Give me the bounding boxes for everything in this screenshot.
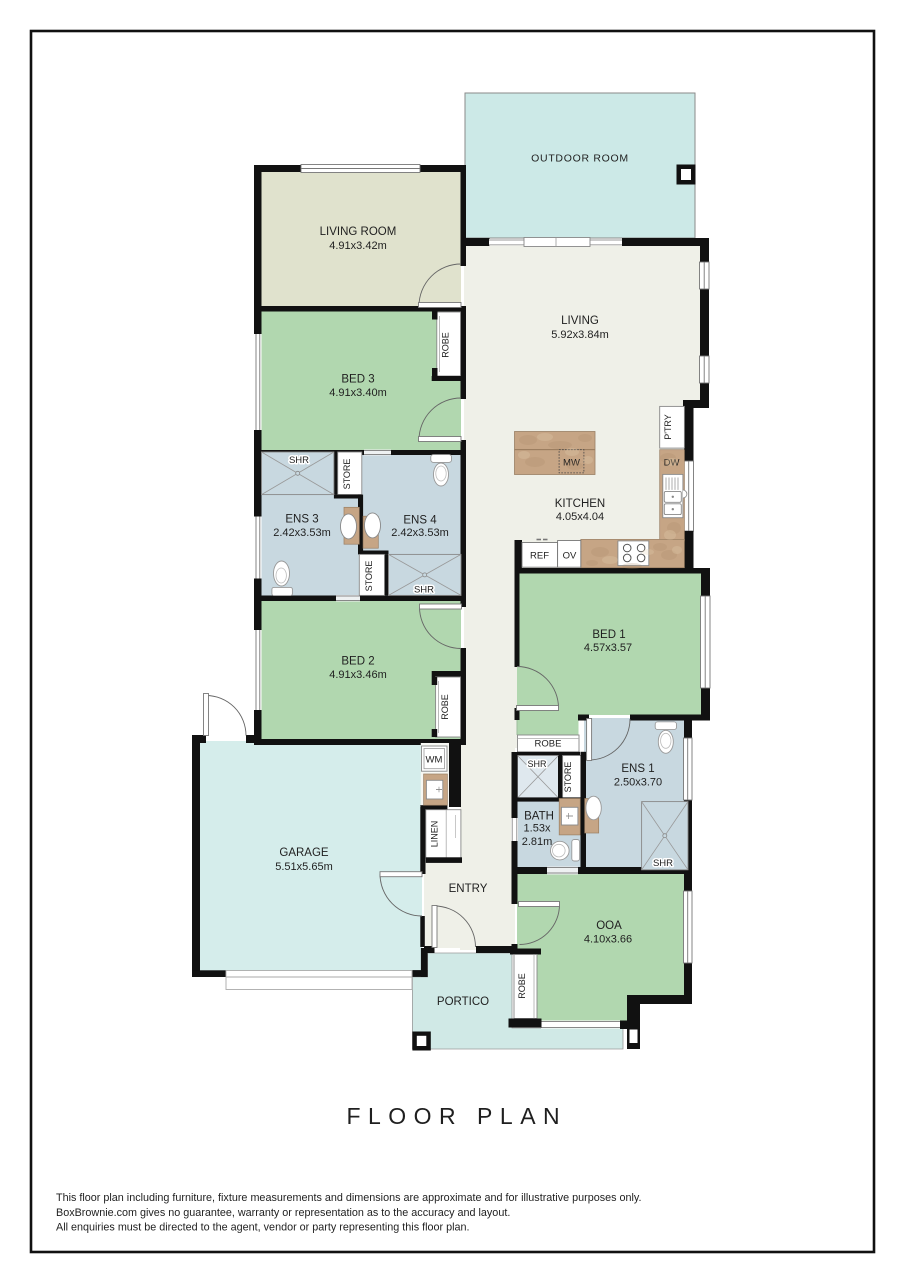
svg-text:OV: OV [563,551,577,562]
svg-text:4.91x3.42m: 4.91x3.42m [329,240,386,252]
svg-text:REF: REF [530,551,549,562]
svg-text:LIVING ROOM: LIVING ROOM [320,226,397,238]
svg-text:This floor plan including furn: This floor plan including furniture, fix… [56,1192,642,1204]
svg-text:All enquiries must be directed: All enquiries must be directed to the ag… [56,1222,470,1234]
svg-text:1.53x: 1.53x [524,823,551,835]
svg-text:STORE: STORE [563,762,573,793]
svg-text:5.92x3.84m: 5.92x3.84m [551,329,608,341]
svg-text:ROBE: ROBE [441,332,451,358]
svg-text:4.10x3.66: 4.10x3.66 [584,934,632,946]
svg-text:ENS 4: ENS 4 [403,515,437,527]
svg-text:BED 2: BED 2 [341,656,374,668]
svg-text:LIVING: LIVING [561,315,599,327]
svg-text:ENS 1: ENS 1 [621,763,654,775]
svg-text:KITCHEN: KITCHEN [555,498,605,510]
svg-text:WM: WM [426,755,443,766]
svg-text:2.42x3.53m: 2.42x3.53m [273,527,330,539]
svg-text:BATH: BATH [524,811,554,823]
svg-text:ENTRY: ENTRY [449,883,488,895]
svg-text:4.91x3.40m: 4.91x3.40m [329,387,386,399]
svg-text:OOA: OOA [596,920,622,932]
svg-text:ROBE: ROBE [535,739,562,750]
svg-text:ROBE: ROBE [440,694,450,720]
svg-text:SHR: SHR [289,455,309,466]
svg-text:BED 3: BED 3 [341,374,374,386]
svg-text:STORE: STORE [342,459,352,490]
svg-text:5.51x5.65m: 5.51x5.65m [275,861,332,873]
svg-text:SHR: SHR [414,585,434,596]
svg-text:SHR: SHR [527,759,547,769]
svg-text:P'TRY: P'TRY [663,414,673,440]
svg-text:BED 1: BED 1 [592,629,625,641]
svg-text:2.50x3.70: 2.50x3.70 [614,777,662,789]
svg-text:2.42x3.53m: 2.42x3.53m [391,527,448,539]
svg-text:BoxBrownie.com gives no guaran: BoxBrownie.com gives no guarantee, warra… [56,1207,510,1219]
svg-text:STORE: STORE [364,561,374,592]
svg-text:4.05x4.04: 4.05x4.04 [556,511,604,523]
svg-text:2.81m: 2.81m [522,836,553,848]
svg-text:OUTDOOR ROOM: OUTDOOR ROOM [531,153,629,165]
svg-text:4.57x3.57: 4.57x3.57 [584,642,632,654]
svg-text:4.91x3.46m: 4.91x3.46m [329,669,386,681]
svg-text:SHR: SHR [653,858,673,869]
svg-text:ROBE: ROBE [517,973,527,999]
svg-text:PORTICO: PORTICO [437,996,489,1008]
svg-text:FLOOR PLAN: FLOOR PLAN [346,1103,567,1129]
svg-text:GARAGE: GARAGE [279,847,329,859]
svg-text:ENS 3: ENS 3 [285,514,318,526]
svg-text:LINEN: LINEN [430,821,440,848]
